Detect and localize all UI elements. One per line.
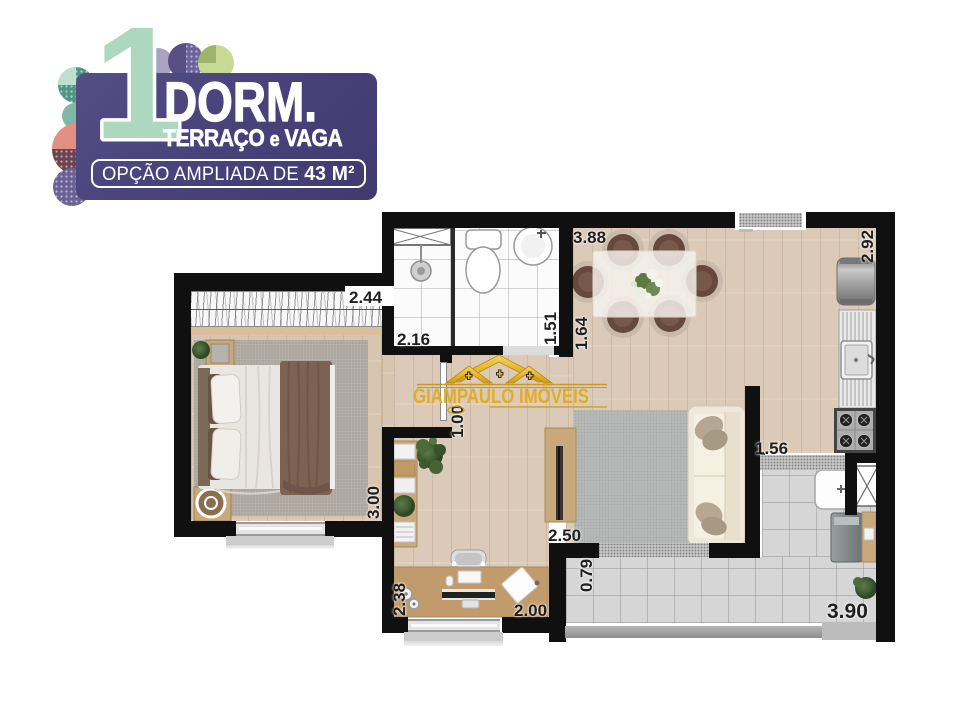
svg-text:GIAMPAULO IMÓVEIS: GIAMPAULO IMÓVEIS [413,384,589,408]
